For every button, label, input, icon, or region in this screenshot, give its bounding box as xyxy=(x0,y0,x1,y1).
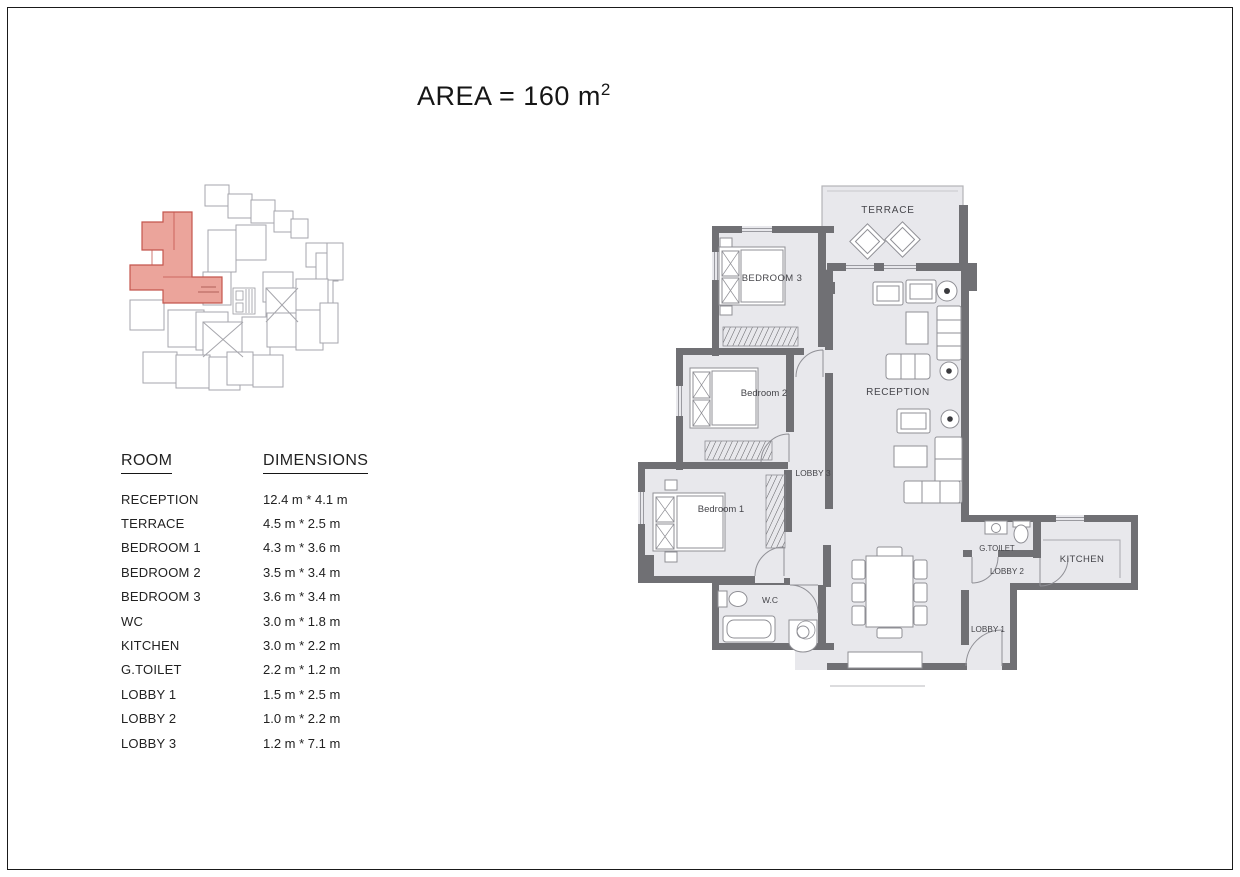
table-row: BEDROOM 14.3 m * 3.6 m xyxy=(121,536,421,560)
key-plan xyxy=(110,170,370,400)
toilet-icon xyxy=(718,591,747,607)
coffee-table-icon xyxy=(894,446,927,467)
area-exponent: 2 xyxy=(601,80,611,99)
armchair-icon xyxy=(897,409,930,433)
kitchen-label: KITCHEN xyxy=(1060,554,1105,565)
lobby3-label: LOBBY 3 xyxy=(795,468,831,478)
table-row: TERRACE4.5 m * 2.5 m xyxy=(121,511,421,535)
table-row: LOBBY 21.0 m * 2.2 m xyxy=(121,707,421,731)
plant-icon xyxy=(937,281,957,301)
table-body: RECEPTION12.4 m * 4.1 m TERRACE4.5 m * 2… xyxy=(121,487,421,755)
sink-icon xyxy=(985,521,1007,534)
bedroom3-label: BEDROOM 3 xyxy=(742,273,803,284)
coffee-table-icon xyxy=(906,312,928,344)
wardrobe-icon xyxy=(705,441,772,460)
armchair-icon xyxy=(906,280,936,303)
table-row: KITCHEN3.0 m * 2.2 m xyxy=(121,633,421,657)
table-row: BEDROOM 23.5 m * 3.4 m xyxy=(121,560,421,584)
floor-plan: TERRACE BEDROOM 3 Bedroom 2 Bedroom 1 RE… xyxy=(628,170,1173,690)
console-icon xyxy=(848,652,922,668)
table-row: RECEPTION12.4 m * 4.1 m xyxy=(121,487,421,511)
table-row: BEDROOM 33.6 m * 3.4 m xyxy=(121,585,421,609)
room-header: ROOM xyxy=(121,452,172,474)
reception-label: RECEPTION xyxy=(866,387,930,398)
plant-icon xyxy=(940,362,958,380)
terrace-label: TERRACE xyxy=(861,205,914,216)
table-row: LOBBY 31.2 m * 7.1 m xyxy=(121,731,421,755)
bathtub-icon xyxy=(723,616,775,642)
bedroom1-label: Bedroom 1 xyxy=(698,504,744,515)
table-header: ROOM DIMENSIONS xyxy=(121,452,421,474)
table-row: G.TOILET2.2 m * 1.2 m xyxy=(121,658,421,682)
wardrobe-icon xyxy=(723,327,798,346)
stairs-icon xyxy=(233,288,255,314)
armchair-icon xyxy=(873,282,903,305)
area-label: AREA = 160 m xyxy=(417,81,601,111)
key-plan-drawing xyxy=(110,170,370,400)
table-row: WC3.0 m * 1.8 m xyxy=(121,609,421,633)
sofa-icon xyxy=(937,306,961,360)
sofa-icon xyxy=(886,354,930,379)
lobby1-label: LOBBY 1 xyxy=(971,625,1005,634)
page-title: AREA = 160 m2 xyxy=(417,80,611,112)
table-row: LOBBY 11.5 m * 2.5 m xyxy=(121,682,421,706)
plant-icon xyxy=(941,410,959,428)
gtoilet-label: G.TOILET xyxy=(979,544,1015,553)
wc-label: W.C xyxy=(762,595,778,605)
dimensions-header: DIMENSIONS xyxy=(263,452,368,474)
lobby2-label: LOBBY 2 xyxy=(990,567,1024,576)
dining-table-icon xyxy=(852,547,927,638)
wardrobe-icon xyxy=(766,475,785,548)
bedroom2-label: Bedroom 2 xyxy=(741,388,787,399)
floor-plan-drawing: TERRACE BEDROOM 3 Bedroom 2 Bedroom 1 RE… xyxy=(628,170,1173,690)
dimensions-table: ROOM DIMENSIONS RECEPTION12.4 m * 4.1 m … xyxy=(121,452,421,755)
